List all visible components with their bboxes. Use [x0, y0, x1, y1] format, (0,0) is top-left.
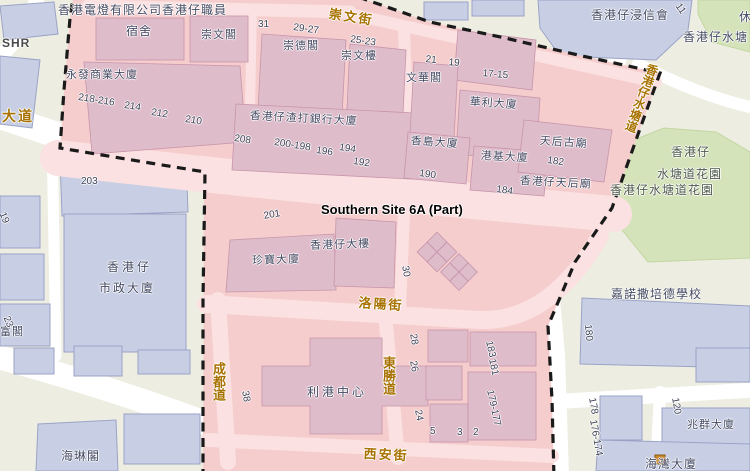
- building-label-sung-man-court: 崇文閣: [201, 30, 237, 41]
- house-number-178: 178: [586, 397, 599, 415]
- house-number-31: 31: [258, 20, 269, 30]
- building-label-dormitory: 宿舍: [126, 25, 152, 37]
- building-label-siu-kwan-mansion: 兆群大廈: [687, 420, 735, 431]
- house-number-17-15: 17-15: [482, 69, 508, 81]
- house-number-120: 120: [669, 397, 682, 415]
- park-label-full: 香港仔水塘道花園: [610, 184, 714, 196]
- building-label-fu-court-partial: 富閣: [0, 327, 24, 338]
- building-label-aberdeen-building: 香港仔大樓: [310, 239, 370, 252]
- building-label-lee-kong-centre: 利港中心: [307, 386, 367, 398]
- house-number-183: 183: [483, 340, 496, 358]
- house-number-203: 203: [81, 177, 98, 187]
- house-number-24: 24: [412, 409, 424, 422]
- house-number-184: 184: [496, 185, 514, 197]
- building-label-canossa-school: 嘉諾撒培德學校: [611, 288, 702, 300]
- house-number-181: 181: [486, 358, 499, 376]
- house-number-38: 38: [239, 390, 251, 403]
- house-number-19: 19: [448, 58, 460, 69]
- building-label-wing-fat-commercial: 永發商業大廈: [66, 70, 138, 81]
- map-canvas[interactable]: Southern Site 6A (Part) 崇文街 大道 洛陽街 成都道 東…: [0, 0, 750, 471]
- building-label-municipal-line2: 市政大廈: [99, 282, 155, 294]
- park-label-line2: 水塘道花園: [657, 168, 722, 180]
- building-label-hoi-wan-mansion-partial: 海灣大廈: [645, 458, 697, 470]
- house-number-180: 180: [582, 324, 593, 341]
- label-shr-partial: SHR: [2, 37, 30, 49]
- building-label-municipal-line1: 香港仔: [107, 261, 152, 273]
- house-number-182: 182: [547, 156, 565, 168]
- street-label-main-road-partial: 大道: [2, 109, 34, 123]
- house-number-28: 28: [407, 333, 419, 346]
- site-title: Southern Site 6A (Part): [321, 203, 463, 216]
- street-label-lok-yeung-street: 洛陽街: [358, 296, 404, 312]
- house-number-21: 21: [425, 55, 437, 66]
- house-number-2: 2: [473, 428, 479, 438]
- building-label-hoi-lam-court: 海琳閣: [61, 450, 100, 462]
- building-label-sung-man-house: 崇文樓: [341, 51, 377, 62]
- label-reservoir-partial: 香港仔水塘: [683, 31, 748, 43]
- label-rest-garden-partial: 休: [739, 11, 750, 23]
- house-number-190: 190: [419, 169, 437, 181]
- building-label-baptist-church: 香港仔浸信會: [591, 9, 669, 21]
- house-number-3: 3: [457, 428, 463, 438]
- building-label-man-wah-court: 文華閣: [406, 73, 442, 84]
- house-number-30: 30: [399, 265, 411, 278]
- building-label-sung-tak-court: 崇德閣: [283, 41, 319, 52]
- street-label-tung-sing-road: 東勝道: [382, 356, 395, 395]
- building-aberdeen-building: [334, 218, 396, 288]
- road-bottom-right: [548, 390, 750, 402]
- house-number-5: 5: [430, 427, 436, 437]
- street-label-shing-too-road: 成都道: [212, 362, 225, 401]
- street-label-sai-on-street: 西安街: [363, 447, 409, 462]
- building-17-15: [454, 30, 536, 90]
- building-tin-hau-temple: [518, 120, 612, 182]
- building-hoi-lam-court: [36, 420, 118, 471]
- house-number-26: 26: [407, 360, 419, 373]
- building-label-jumbo: 珍寶大廈: [252, 254, 300, 267]
- building-label-hk-electric-staff: 香港電燈有限公司香港仔職員: [58, 4, 227, 16]
- park-label-line1: 香港仔: [671, 146, 710, 158]
